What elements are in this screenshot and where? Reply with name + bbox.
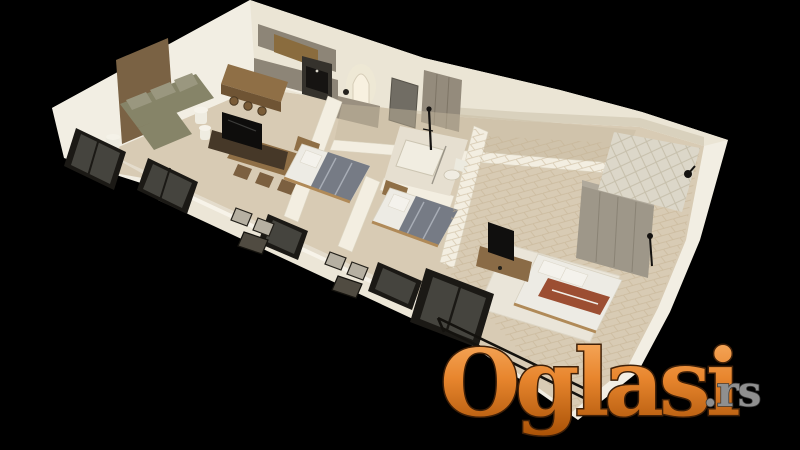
listing-photo: Oglasi .rs	[0, 0, 800, 450]
side-table-top	[194, 107, 208, 114]
console-decor	[498, 266, 502, 270]
shower-head	[426, 106, 431, 111]
bar-stool	[244, 102, 252, 110]
watermark-brand: Oglasi	[440, 329, 739, 437]
side-table-top	[199, 125, 211, 131]
planter-top	[106, 134, 120, 140]
watermark: Oglasi .rs	[440, 329, 760, 437]
niche-vase	[343, 89, 349, 95]
toilet-bowl	[444, 170, 460, 180]
bar-stool	[230, 97, 238, 105]
apartment-3d-render: Oglasi .rs	[0, 0, 800, 450]
bar-stool	[258, 107, 266, 115]
oven-display	[316, 70, 319, 73]
arched-niche	[353, 74, 369, 104]
watermark-suffix: .rs	[703, 367, 760, 416]
floor-lamp-head	[647, 233, 653, 239]
